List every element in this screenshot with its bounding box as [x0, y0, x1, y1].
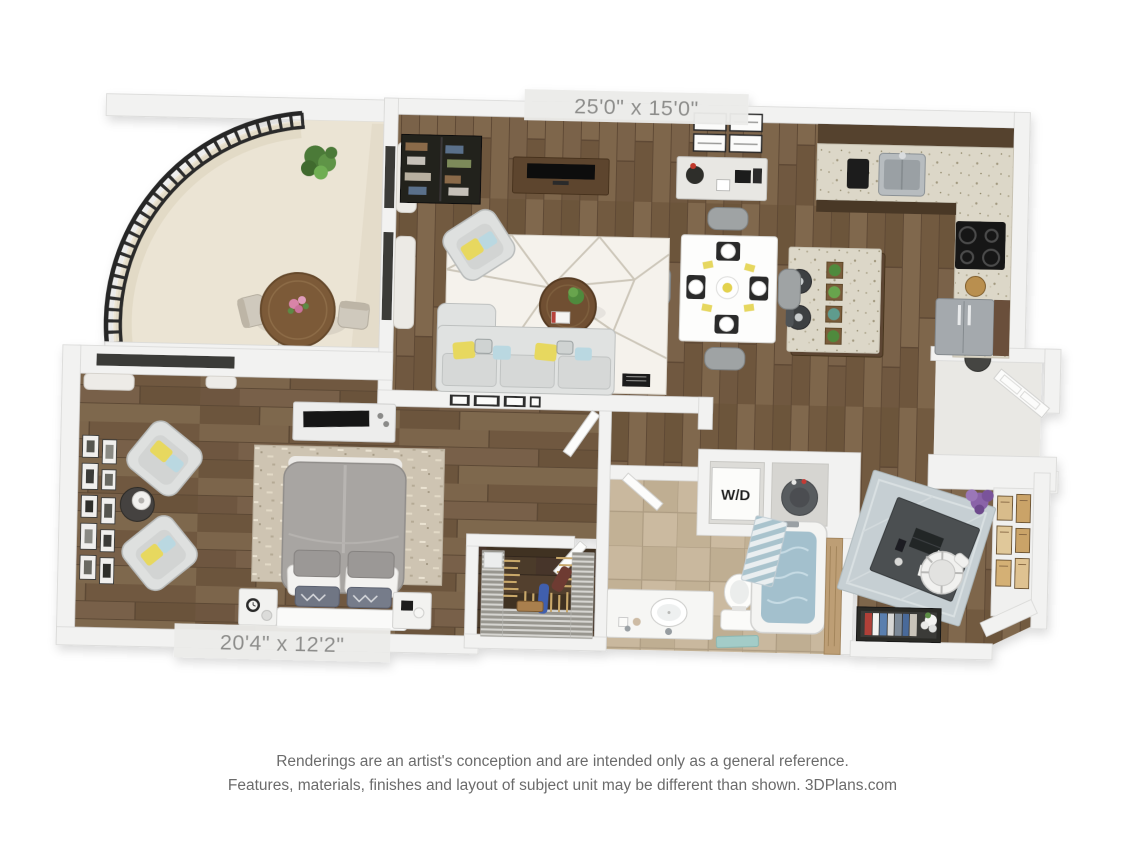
coffee-maker [847, 158, 870, 188]
bookshelf [400, 134, 482, 204]
decor-basket [965, 276, 985, 296]
floor-plan-rendering: W/D [0, 0, 1125, 844]
pillow-pattern [557, 341, 573, 354]
tub-surround [824, 538, 843, 654]
patio-chair [337, 301, 370, 330]
vanity [606, 589, 713, 639]
living-dimension-text: 25'0" x 15'0" [574, 94, 699, 121]
entry-floor [933, 361, 1041, 463]
wall-return [698, 397, 713, 429]
nightstand [393, 592, 432, 629]
disclaimer-line-2: Features, materials, finishes and layout… [0, 774, 1125, 798]
pillow-blue [575, 347, 592, 360]
bedroom-dimension-label: 20'4" x 12'2" [174, 623, 391, 662]
dining-chair [708, 207, 748, 230]
disclaimer-line-1: Renderings are an artist's conception an… [0, 750, 1125, 774]
disclaimer: Renderings are an artist's conception an… [0, 750, 1125, 797]
pillow-yellow [452, 341, 475, 360]
pillow-accent [347, 587, 391, 608]
bedroom-curtain [84, 373, 134, 390]
bedroom-curtain [206, 376, 236, 389]
floor-plan-stage: W/D [0, 0, 1125, 844]
balcony-top-wall [106, 94, 398, 123]
bedroom-tv [303, 411, 369, 428]
pillow-yellow [534, 343, 558, 362]
nightstand [239, 589, 278, 626]
dining-chair [778, 269, 801, 309]
balcony [100, 94, 398, 379]
cooktop [955, 221, 1006, 270]
bath-mat [716, 635, 758, 647]
floor-plan: W/D [56, 79, 1067, 677]
dining-chair [705, 347, 745, 370]
pillow-pattern [475, 339, 492, 353]
storage-box [484, 552, 502, 567]
closet-west-wall [464, 534, 479, 648]
washer-dryer-label: W/D [721, 487, 751, 505]
fridge-panel [993, 300, 1010, 356]
kitchen-sink [879, 152, 926, 197]
television [527, 163, 595, 180]
sideboard [676, 157, 767, 201]
pillow-accent [295, 586, 339, 607]
office-south-wall [850, 641, 992, 660]
tv-console [512, 157, 609, 195]
entry-east-wall [1044, 349, 1061, 413]
living-dimension-label: 25'0" x 15'0" [524, 89, 749, 125]
bedroom-tv-console [293, 402, 396, 442]
bedroom-dimension-text: 20'4" x 12'2" [220, 630, 345, 657]
living-window [382, 232, 394, 320]
wire-shelf [570, 552, 594, 638]
office-bookshelf [856, 607, 941, 643]
living-window [384, 146, 395, 208]
pillow-blue [493, 345, 511, 359]
closet-north-wall [466, 534, 574, 548]
basket [517, 601, 543, 612]
pillow-gray [348, 551, 395, 578]
wire-shelf [502, 609, 571, 639]
dining-table [679, 235, 777, 343]
curtain [393, 236, 415, 328]
refrigerator [935, 299, 1010, 357]
pillow-gray [294, 550, 341, 577]
side-table-lamp [120, 487, 155, 522]
